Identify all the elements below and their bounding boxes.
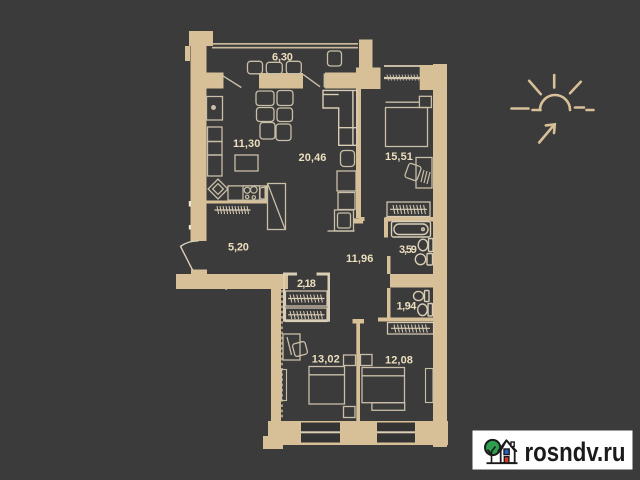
svg-text:1,94: 1,94 (397, 301, 418, 313)
svg-text:15,51: 15,51 (385, 151, 413, 163)
svg-text:2,18: 2,18 (297, 278, 316, 290)
svg-text:20,46: 20,46 (299, 152, 327, 164)
svg-text:12,08: 12,08 (385, 355, 413, 367)
svg-text:11,96: 11,96 (346, 253, 373, 265)
svg-text:rosndv.ru: rosndv.ru (525, 437, 626, 467)
svg-text:11,30: 11,30 (233, 138, 260, 150)
svg-text:5,20: 5,20 (228, 242, 249, 254)
svg-text:13,02: 13,02 (312, 354, 340, 366)
svg-text:3,59: 3,59 (399, 244, 417, 256)
svg-text:6,30: 6,30 (272, 52, 293, 64)
